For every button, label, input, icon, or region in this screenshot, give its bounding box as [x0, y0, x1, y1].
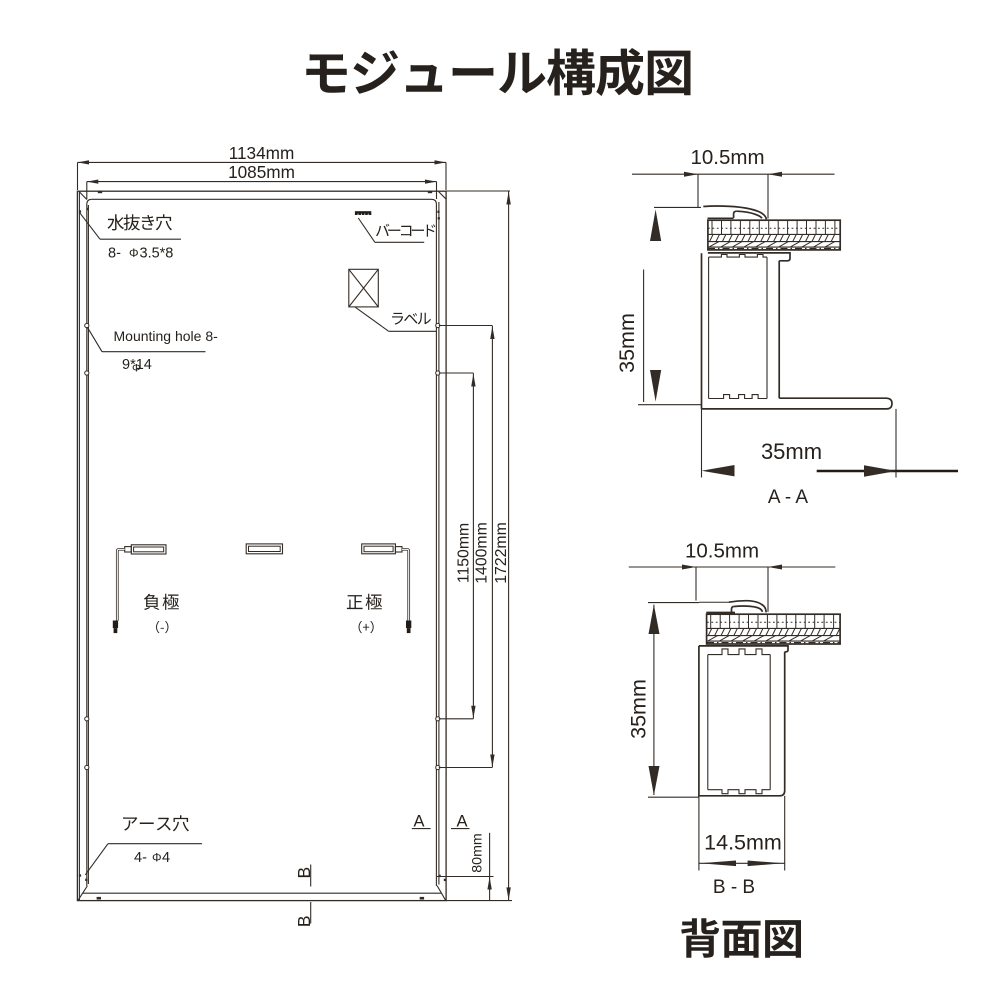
svg-text:10.5mm: 10.5mm: [690, 146, 764, 169]
svg-text:35mm: 35mm: [761, 439, 822, 464]
svg-text:80mm: 80mm: [470, 833, 486, 872]
svg-text:Φ: Φ: [129, 246, 139, 260]
svg-text:8-: 8-: [108, 246, 121, 262]
svg-text:B - B: B - B: [713, 877, 755, 898]
svg-text:A: A: [413, 812, 424, 830]
svg-text:1150mm: 1150mm: [455, 523, 472, 583]
svg-text:1134mm: 1134mm: [229, 143, 295, 163]
svg-text:35mm: 35mm: [615, 313, 639, 373]
svg-text:1400mm: 1400mm: [473, 522, 490, 583]
svg-text:3.5*8: 3.5*8: [140, 246, 174, 262]
svg-text:4: 4: [162, 850, 170, 866]
svg-text:10.5mm: 10.5mm: [685, 539, 759, 562]
svg-text:Mounting hole 8-: Mounting hole 8-: [114, 328, 219, 344]
svg-text:A - A: A - A: [768, 487, 808, 508]
svg-text:Φ: Φ: [152, 851, 162, 865]
svg-text:4-: 4-: [134, 850, 147, 866]
svg-text:1722mm: 1722mm: [493, 522, 510, 583]
svg-text:A: A: [456, 812, 467, 830]
svg-text:1085mm: 1085mm: [228, 162, 295, 182]
svg-text:Φ: Φ: [132, 363, 141, 375]
svg-text:35mm: 35mm: [627, 679, 651, 739]
svg-text:14.5mm: 14.5mm: [704, 831, 782, 855]
